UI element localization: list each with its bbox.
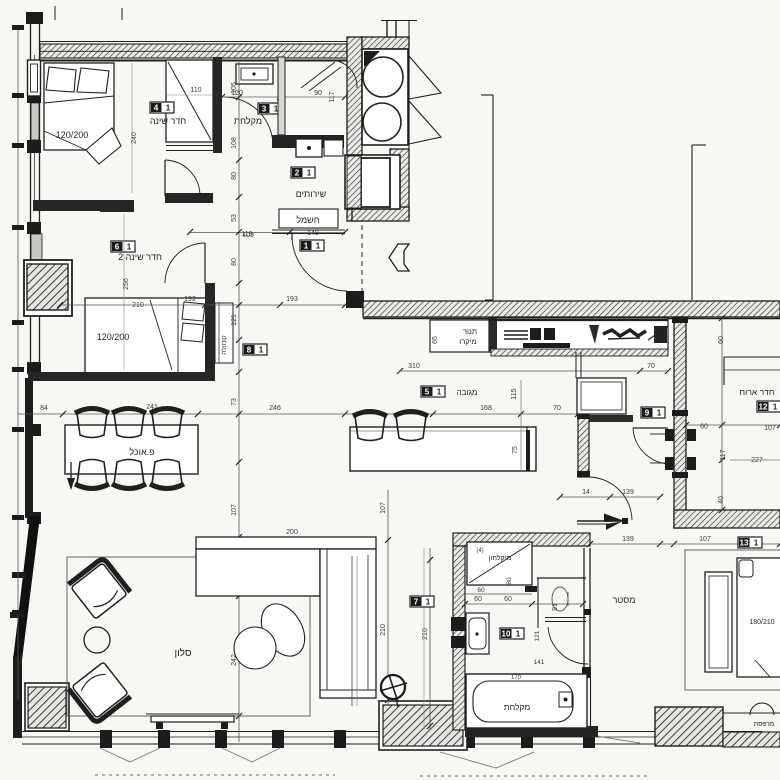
svg-text:1: 1	[316, 242, 321, 251]
svg-text:141: 141	[534, 659, 545, 666]
svg-text:120/200: 120/200	[97, 332, 130, 342]
svg-text:סלון: סלון	[174, 647, 191, 659]
svg-text:90: 90	[314, 90, 322, 97]
svg-text:6: 6	[115, 243, 120, 252]
svg-text:1: 1	[773, 403, 778, 412]
svg-text:חדר שינה 2: חדר שינה 2	[118, 252, 162, 262]
svg-text:60: 60	[477, 587, 485, 594]
svg-text:13: 13	[740, 539, 749, 548]
svg-text:2: 2	[295, 169, 300, 178]
svg-text:1: 1	[304, 242, 309, 251]
svg-text:1: 1	[754, 539, 759, 548]
svg-text:1: 1	[657, 409, 662, 418]
svg-text:1: 1	[437, 388, 442, 397]
svg-text:1: 1	[426, 598, 431, 607]
svg-text:121: 121	[231, 314, 238, 326]
svg-text:193: 193	[286, 296, 298, 303]
svg-text:1: 1	[127, 243, 132, 252]
svg-text:121: 121	[534, 630, 541, 641]
svg-text:117: 117	[720, 449, 727, 460]
svg-text:שירותים: שירותים	[296, 189, 327, 199]
svg-text:מגובה: מגובה	[457, 388, 478, 397]
svg-text:1: 1	[307, 169, 312, 178]
svg-text:מיקרו: מיקרו	[459, 337, 476, 346]
svg-text:14: 14	[582, 489, 590, 496]
svg-text:מקלחת: מקלחת	[234, 116, 262, 126]
svg-text:73: 73	[231, 398, 238, 406]
svg-text:75: 75	[512, 446, 519, 454]
svg-text:70: 70	[647, 363, 655, 370]
svg-text:246: 246	[269, 405, 281, 412]
svg-text:12: 12	[759, 403, 768, 412]
svg-text:110: 110	[190, 87, 201, 94]
svg-text:107: 107	[764, 425, 776, 432]
svg-text:חשמל: חשמל	[296, 215, 319, 225]
svg-text:149: 149	[307, 230, 319, 237]
svg-text:108: 108	[231, 137, 238, 149]
svg-text:210: 210	[132, 302, 144, 309]
svg-text:60: 60	[718, 336, 725, 344]
svg-text:227: 227	[751, 457, 763, 464]
svg-text:139: 139	[622, 489, 634, 496]
svg-text:200: 200	[286, 529, 298, 536]
svg-text:(4): (4)	[476, 548, 483, 554]
svg-text:119: 119	[241, 231, 252, 238]
svg-text:107: 107	[699, 536, 711, 543]
svg-text:3: 3	[262, 105, 267, 114]
svg-text:80: 80	[231, 258, 238, 266]
svg-text:180/210: 180/210	[749, 619, 774, 626]
svg-text:107: 107	[231, 504, 238, 516]
svg-text:מקלחת: מקלחת	[504, 702, 531, 712]
svg-text:פ.אוכל: פ.אוכל	[129, 447, 154, 457]
svg-text:4: 4	[154, 104, 159, 113]
svg-text:60: 60	[700, 424, 708, 431]
svg-text:107: 107	[380, 502, 387, 514]
svg-text:70: 70	[553, 405, 561, 412]
svg-text:105: 105	[231, 82, 238, 94]
svg-text:210: 210	[380, 624, 387, 636]
svg-text:10: 10	[502, 630, 511, 639]
svg-text:80: 80	[506, 577, 513, 585]
svg-text:מיקלחון: מיקלחון	[489, 554, 512, 562]
svg-text:310: 310	[408, 363, 420, 370]
svg-text:80: 80	[231, 172, 238, 180]
svg-text:קונזולה: קונזולה	[220, 335, 228, 354]
svg-text:53: 53	[231, 214, 238, 222]
svg-text:210: 210	[422, 628, 429, 640]
svg-text:1: 1	[166, 104, 171, 113]
svg-text:9: 9	[645, 409, 650, 418]
svg-text:192: 192	[184, 296, 196, 303]
svg-text:7: 7	[414, 598, 419, 607]
svg-text:1: 1	[259, 346, 264, 355]
svg-text:84: 84	[40, 405, 48, 412]
svg-text:חדר ארוח: חדר ארוח	[740, 387, 775, 397]
svg-text:60: 60	[474, 596, 482, 603]
svg-text:60: 60	[504, 596, 512, 603]
svg-text:מרפסת: מרפסת	[754, 721, 774, 728]
svg-text:139: 139	[622, 536, 634, 543]
svg-text:65: 65	[432, 336, 439, 344]
svg-text:5: 5	[425, 388, 430, 397]
svg-text:120/200: 120/200	[56, 130, 89, 140]
svg-text:חדר שינה: חדר שינה	[150, 116, 186, 126]
svg-text:מסטר: מסטר	[613, 595, 636, 605]
svg-text:40: 40	[718, 496, 725, 504]
svg-text:168: 168	[480, 405, 492, 412]
svg-text:1: 1	[516, 630, 521, 639]
svg-text:תנור: תנור	[463, 327, 477, 336]
svg-text:115: 115	[511, 388, 518, 399]
svg-text:170: 170	[511, 675, 522, 681]
svg-text:8: 8	[247, 346, 252, 355]
